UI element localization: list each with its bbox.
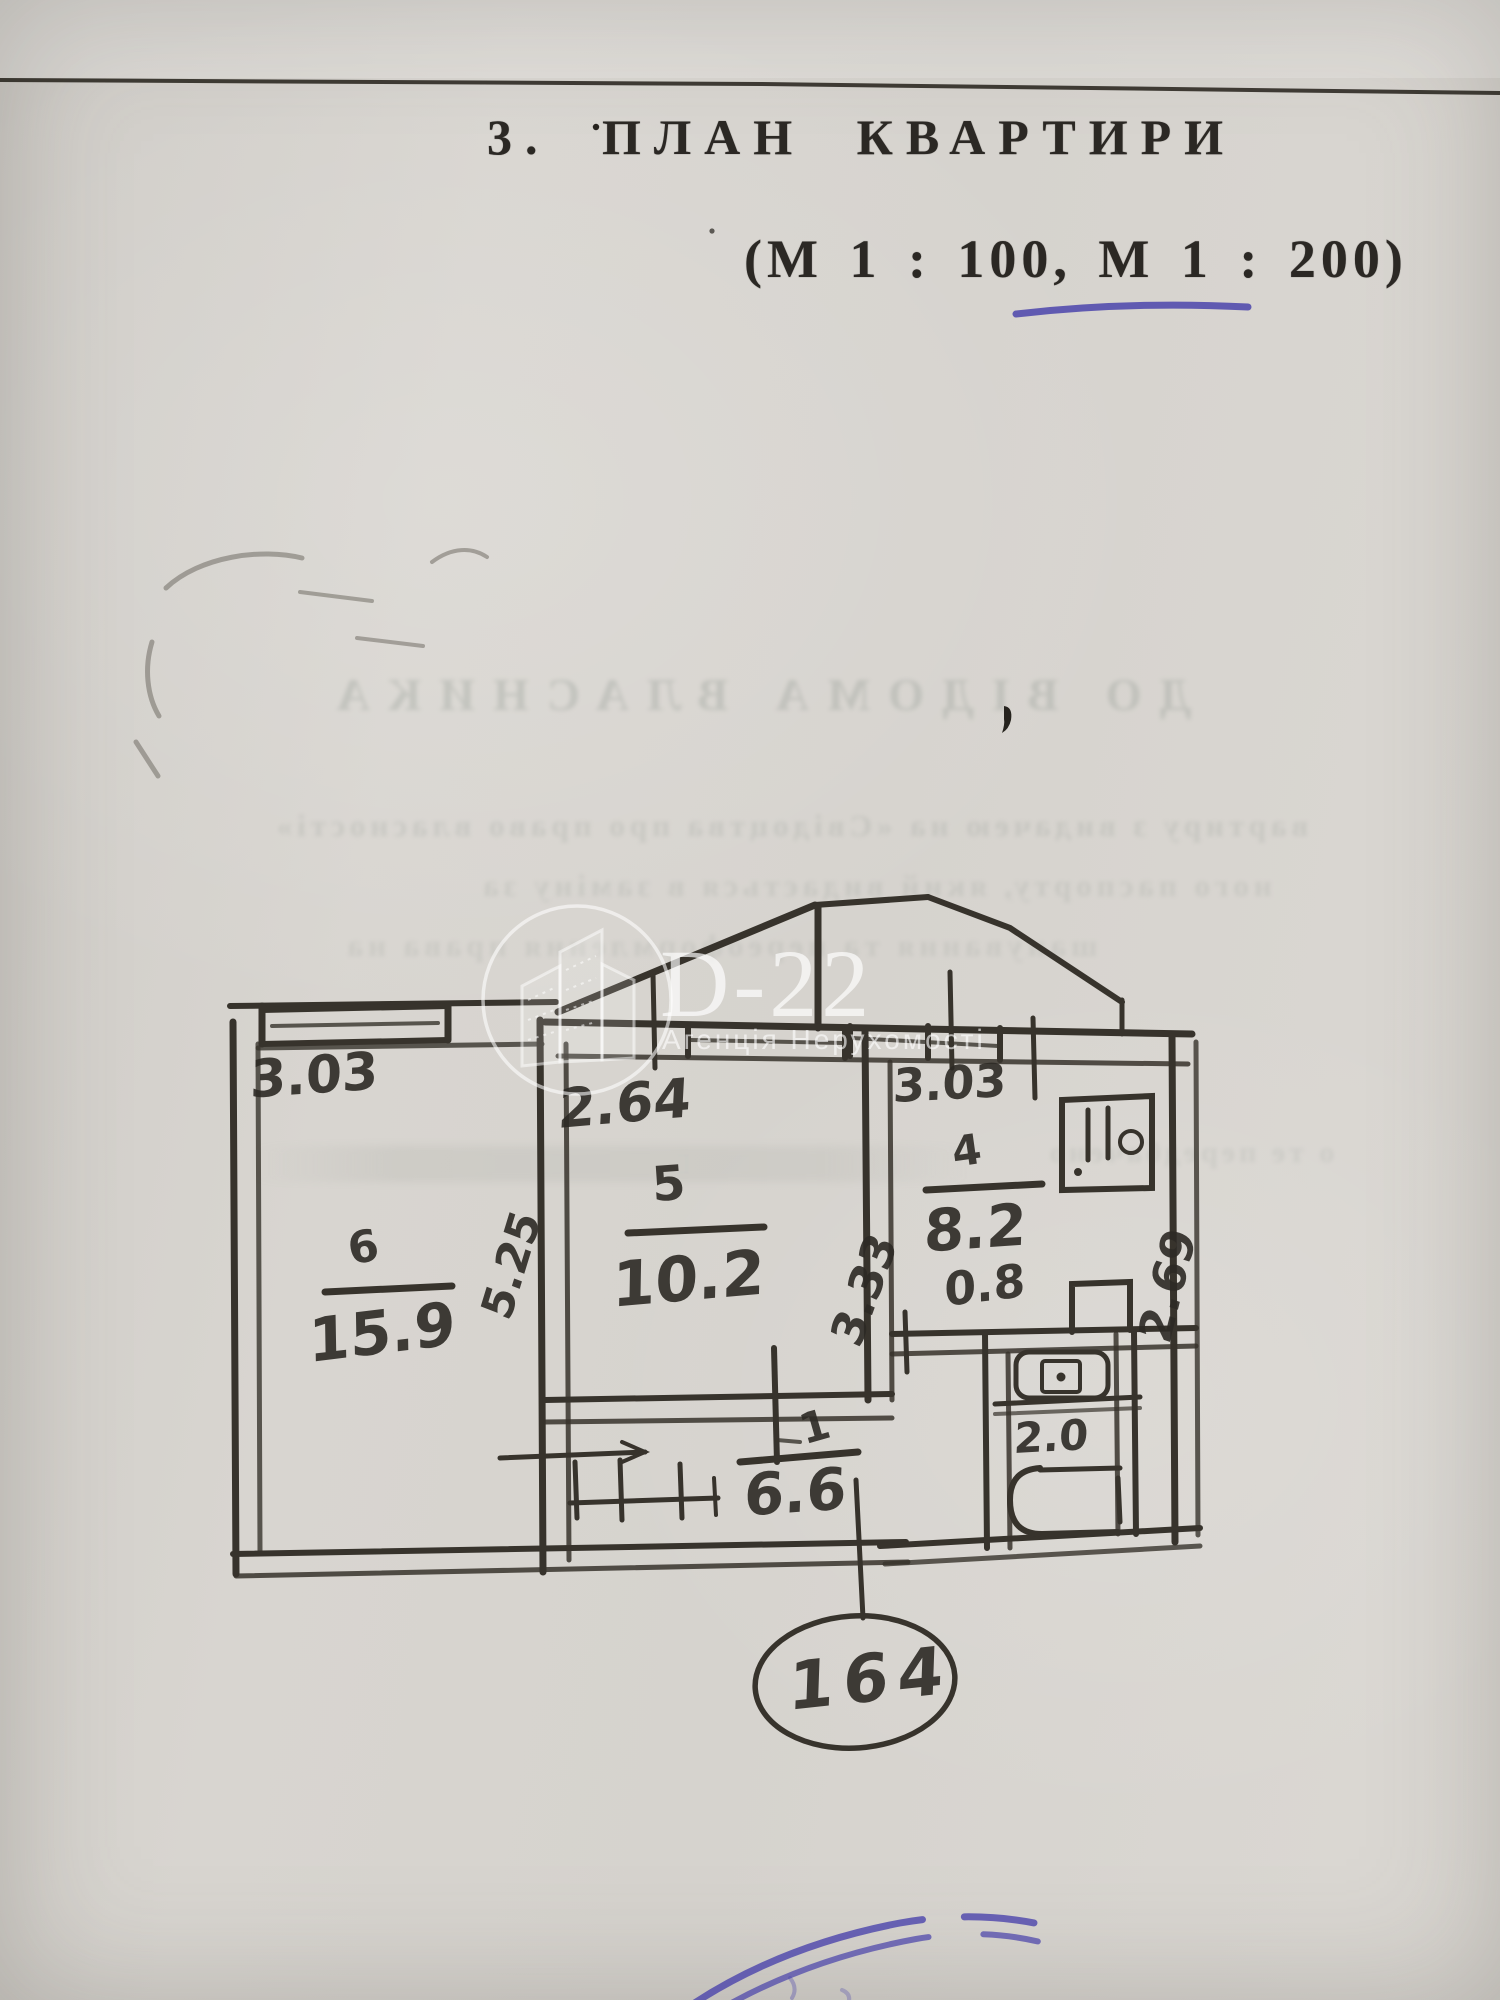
washbasin-icon xyxy=(1016,1352,1108,1398)
plan-sketch-layer xyxy=(0,0,1500,2000)
room5-width-dim: 2.64 xyxy=(557,1066,693,1141)
room5-area: 10.2 xyxy=(612,1235,766,1322)
scanned-passport-page: ДО ВІДОМА ВЛАСНИКА вартиру з видачею на … xyxy=(0,0,1500,2000)
window-symbol-room5 xyxy=(688,1028,845,1058)
room4-width-dim: 3.03 xyxy=(892,1053,1007,1113)
window-symbol-room6 xyxy=(262,1004,448,1044)
hall-closet-ticks xyxy=(570,1460,718,1520)
door-swing-arrow xyxy=(500,1442,645,1462)
sink-icon xyxy=(1072,1282,1130,1332)
ink-specks xyxy=(593,124,1012,733)
bathtub-icon xyxy=(1010,1468,1120,1534)
balcony-outline xyxy=(558,897,1122,1034)
room5-number: 5 xyxy=(650,1155,687,1213)
page-top-rule xyxy=(0,80,1500,93)
scale-underline-pen-stroke xyxy=(1016,305,1248,314)
pencil-scribbles xyxy=(136,550,487,776)
room6-width-dim: 3.03 xyxy=(250,1041,379,1110)
door-room5 xyxy=(774,1348,800,1462)
stove-icon xyxy=(1062,1096,1152,1190)
round-stamp xyxy=(690,1917,1152,2000)
apartment-number-leader xyxy=(856,1480,863,1618)
wc-area-label: 0.8 xyxy=(944,1253,1026,1317)
hallway-area: 6.6 xyxy=(743,1454,848,1530)
bath-area-label: 2.0 xyxy=(1013,1410,1090,1463)
room5-bottom-wall xyxy=(545,1394,892,1422)
